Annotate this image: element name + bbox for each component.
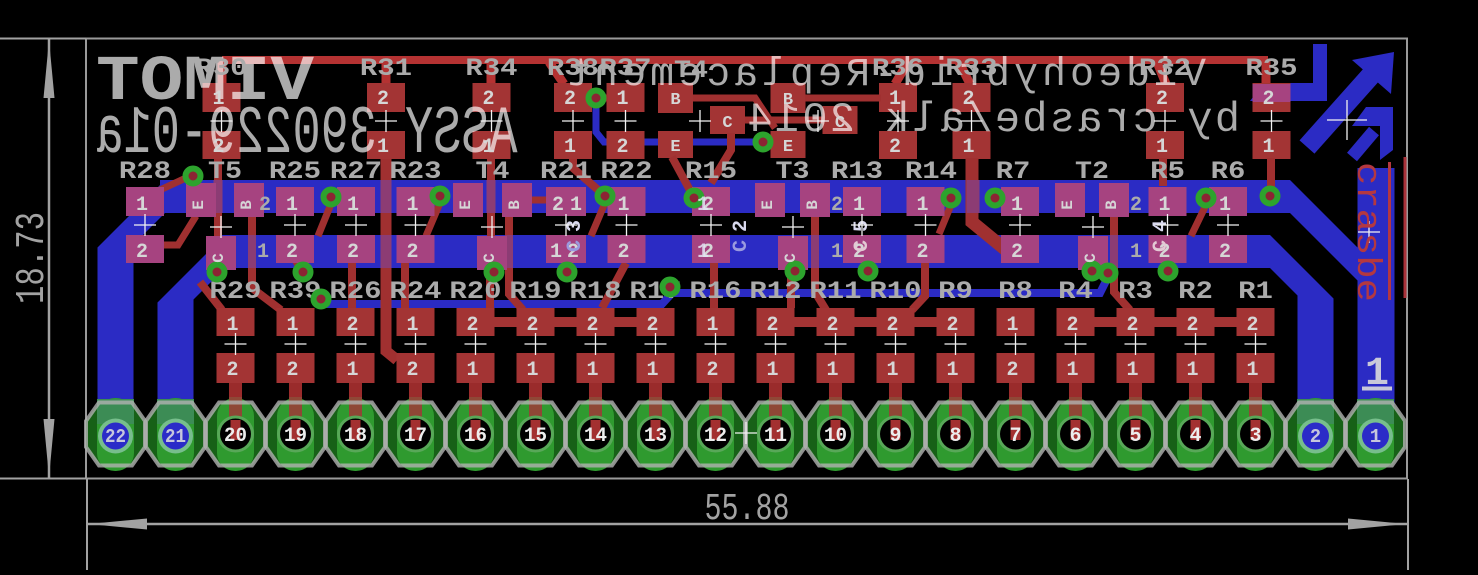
svg-text:1: 1	[136, 194, 148, 217]
svg-text:R22: R22	[600, 157, 652, 186]
svg-text:1: 1	[1011, 194, 1023, 217]
svg-text:2: 2	[889, 136, 901, 159]
svg-text:C: C	[1082, 253, 1100, 263]
svg-text:1: 1	[570, 194, 582, 217]
svg-text:1: 1	[1006, 314, 1018, 337]
svg-text:1: 1	[1156, 136, 1168, 159]
svg-text:2: 2	[826, 314, 838, 337]
svg-text:R9: R9	[938, 277, 973, 306]
svg-text:R13: R13	[831, 157, 883, 186]
svg-text:4: 4	[1189, 425, 1201, 448]
svg-text:C: C	[481, 253, 499, 263]
svg-text:15: 15	[524, 425, 547, 448]
svg-text:1: 1	[1246, 359, 1258, 382]
svg-text:11: 11	[764, 425, 787, 448]
svg-text:21: 21	[165, 426, 186, 448]
svg-text:2: 2	[617, 241, 629, 264]
svg-text:55.88: 55.88	[705, 488, 790, 531]
svg-text:B: B	[1103, 200, 1121, 210]
svg-text:R25: R25	[269, 157, 321, 186]
svg-text:1: 1	[257, 241, 269, 264]
svg-text:E: E	[670, 138, 680, 157]
svg-text:9: 9	[889, 425, 901, 448]
svg-text:E: E	[1059, 200, 1077, 210]
svg-text:R4: R4	[1058, 277, 1093, 306]
svg-text:R8: R8	[998, 277, 1033, 306]
svg-text:3: 3	[1249, 425, 1261, 448]
svg-text:1: 1	[889, 88, 901, 111]
svg-text:2: 2	[616, 136, 628, 159]
svg-text:R24: R24	[389, 277, 441, 306]
svg-text:2: 2	[377, 88, 389, 111]
svg-text:2: 2	[1126, 314, 1138, 337]
svg-text:2: 2	[466, 314, 478, 337]
svg-text:R18: R18	[569, 277, 621, 306]
svg-text:1: 1	[1130, 241, 1142, 264]
svg-text:C: C	[564, 240, 587, 252]
svg-text:2: 2	[406, 241, 418, 264]
svg-text:1: 1	[482, 136, 494, 159]
svg-text:B: B	[670, 91, 680, 110]
svg-text:1: 1	[831, 241, 843, 264]
svg-text:1: 1	[1066, 359, 1078, 382]
svg-text:14: 14	[584, 425, 607, 448]
svg-text:1: 1	[826, 359, 838, 382]
svg-text:R6: R6	[1211, 157, 1246, 186]
svg-text:1: 1	[916, 194, 928, 217]
svg-text:1: 1	[406, 194, 418, 217]
svg-text:1: 1	[853, 194, 865, 217]
svg-text:1: 1	[377, 136, 389, 159]
svg-text:R16: R16	[689, 277, 741, 306]
svg-text:19: 19	[284, 425, 307, 448]
svg-text:R5: R5	[1150, 157, 1185, 186]
svg-text:1: 1	[346, 359, 358, 382]
svg-text:1: 1	[1219, 194, 1231, 217]
svg-text:8: 8	[949, 425, 961, 448]
svg-text:R3: R3	[1118, 277, 1153, 306]
svg-text:R10: R10	[869, 277, 921, 306]
svg-text:2: 2	[766, 314, 778, 337]
svg-text:2: 2	[831, 194, 843, 217]
svg-text:1: 1	[766, 359, 778, 382]
svg-text:2: 2	[886, 314, 898, 337]
svg-text:2: 2	[962, 88, 974, 111]
svg-text:1: 1	[226, 314, 238, 337]
svg-text:2: 2	[1310, 426, 1321, 448]
svg-text:2: 2	[1262, 88, 1274, 111]
svg-text:1: 1	[1262, 136, 1274, 159]
svg-text:2: 2	[1130, 194, 1142, 217]
svg-text:6: 6	[1069, 425, 1081, 448]
svg-text:R7: R7	[996, 157, 1031, 186]
svg-text:E: E	[783, 138, 793, 157]
svg-text:1: 1	[526, 359, 538, 382]
svg-text:2: 2	[916, 241, 928, 264]
svg-text:16: 16	[464, 425, 487, 448]
svg-text:C: C	[851, 240, 874, 252]
svg-text:2: 2	[259, 194, 271, 217]
svg-text:3: 3	[564, 220, 587, 232]
svg-text:2: 2	[1156, 88, 1168, 111]
svg-text:10: 10	[824, 425, 847, 448]
svg-text:C: C	[722, 114, 732, 133]
svg-text:1: 1	[697, 194, 709, 217]
svg-text:E: E	[759, 200, 777, 210]
svg-text:R15: R15	[685, 157, 737, 186]
svg-text:1: 1	[466, 359, 478, 382]
svg-text:1: 1	[617, 194, 629, 217]
svg-text:R28: R28	[119, 157, 171, 186]
svg-text:1: 1	[697, 241, 709, 264]
svg-text:R34: R34	[465, 54, 517, 83]
svg-text:1: 1	[1370, 426, 1381, 448]
svg-text:1: 1	[586, 359, 598, 382]
svg-text:1: 1	[347, 194, 359, 217]
svg-text:2: 2	[136, 241, 148, 264]
svg-text:2: 2	[346, 314, 358, 337]
svg-text:C: C	[210, 253, 228, 263]
svg-text:R36: R36	[872, 54, 924, 83]
svg-text:1: 1	[616, 88, 628, 111]
svg-text:1: 1	[1158, 194, 1170, 217]
svg-text:18.73: 18.73	[10, 212, 56, 304]
svg-text:2: 2	[706, 359, 718, 382]
svg-text:2: 2	[586, 314, 598, 337]
svg-text:7: 7	[1009, 425, 1021, 448]
svg-text:1: 1	[706, 314, 718, 337]
svg-text:R2: R2	[1178, 277, 1213, 306]
svg-text:2: 2	[564, 88, 576, 111]
svg-text:T5: T5	[208, 157, 242, 186]
svg-text:R35: R35	[1245, 54, 1297, 83]
svg-text:2: 2	[347, 241, 359, 264]
svg-text:2: 2	[1219, 241, 1231, 264]
svg-text:B: B	[506, 200, 524, 210]
svg-text:22: 22	[105, 426, 126, 448]
svg-text:5: 5	[1129, 425, 1141, 448]
svg-text:T4: T4	[674, 56, 708, 85]
svg-text:4: 4	[1150, 220, 1173, 232]
svg-text:2: 2	[1066, 314, 1078, 337]
svg-text:B: B	[783, 91, 793, 110]
svg-text:18: 18	[344, 425, 367, 448]
svg-text:1: 1	[406, 314, 418, 337]
svg-text:2: 2	[212, 136, 224, 159]
svg-text:2: 2	[482, 88, 494, 111]
svg-text:13: 13	[644, 425, 667, 448]
svg-text:R38: R38	[547, 54, 599, 83]
svg-text:20: 20	[224, 425, 247, 448]
svg-text:1: 1	[1126, 359, 1138, 382]
svg-text:2: 2	[1011, 241, 1023, 264]
svg-text:1: 1	[646, 359, 658, 382]
svg-text:B: B	[238, 200, 256, 210]
svg-text:1: 1	[886, 359, 898, 382]
svg-text:2: 2	[1246, 314, 1258, 337]
svg-text:R14: R14	[905, 157, 957, 186]
svg-text:R23: R23	[389, 157, 441, 186]
svg-text:C: C	[782, 253, 800, 263]
svg-text:2: 2	[526, 314, 538, 337]
svg-text:2: 2	[730, 220, 753, 232]
svg-text:2: 2	[286, 359, 298, 382]
svg-text:1: 1	[212, 88, 224, 111]
svg-text:1: 1	[564, 136, 576, 159]
svg-text:17: 17	[404, 425, 427, 448]
svg-text:1: 1	[962, 136, 974, 159]
svg-text:T3: T3	[776, 157, 810, 186]
svg-text:1: 1	[286, 194, 298, 217]
svg-text:B: B	[804, 200, 822, 210]
svg-text:1: 1	[286, 314, 298, 337]
svg-text:12: 12	[704, 425, 727, 448]
svg-text:R31: R31	[360, 54, 412, 83]
svg-text:2: 2	[226, 359, 238, 382]
svg-text:R19: R19	[509, 277, 561, 306]
svg-text:R37: R37	[599, 54, 651, 83]
svg-text:2: 2	[406, 359, 418, 382]
svg-text:2: 2	[286, 241, 298, 264]
svg-text:R1: R1	[1238, 277, 1273, 306]
svg-text:R32: R32	[1139, 54, 1191, 83]
svg-text:1: 1	[1186, 359, 1198, 382]
svg-text:R33: R33	[945, 54, 997, 83]
svg-text:C: C	[730, 240, 753, 252]
svg-text:T2: T2	[1075, 157, 1109, 186]
svg-text:E: E	[457, 200, 475, 210]
svg-text:2: 2	[1186, 314, 1198, 337]
svg-text:2: 2	[646, 314, 658, 337]
svg-text:R26: R26	[329, 277, 381, 306]
svg-text:R27: R27	[330, 157, 382, 186]
svg-text:R30: R30	[195, 54, 247, 83]
svg-text:1: 1	[550, 241, 562, 264]
svg-text:R21: R21	[540, 157, 592, 186]
svg-text:E: E	[190, 200, 208, 210]
svg-text:C: C	[835, 114, 845, 133]
svg-text:T4: T4	[476, 157, 510, 186]
svg-text:2: 2	[1006, 359, 1018, 382]
svg-text:2: 2	[946, 314, 958, 337]
svg-text:crasbe: crasbe	[1347, 162, 1385, 302]
svg-text:C: C	[1150, 240, 1173, 252]
svg-text:1: 1	[946, 359, 958, 382]
svg-text:2: 2	[552, 194, 564, 217]
svg-text:R11: R11	[809, 277, 861, 306]
